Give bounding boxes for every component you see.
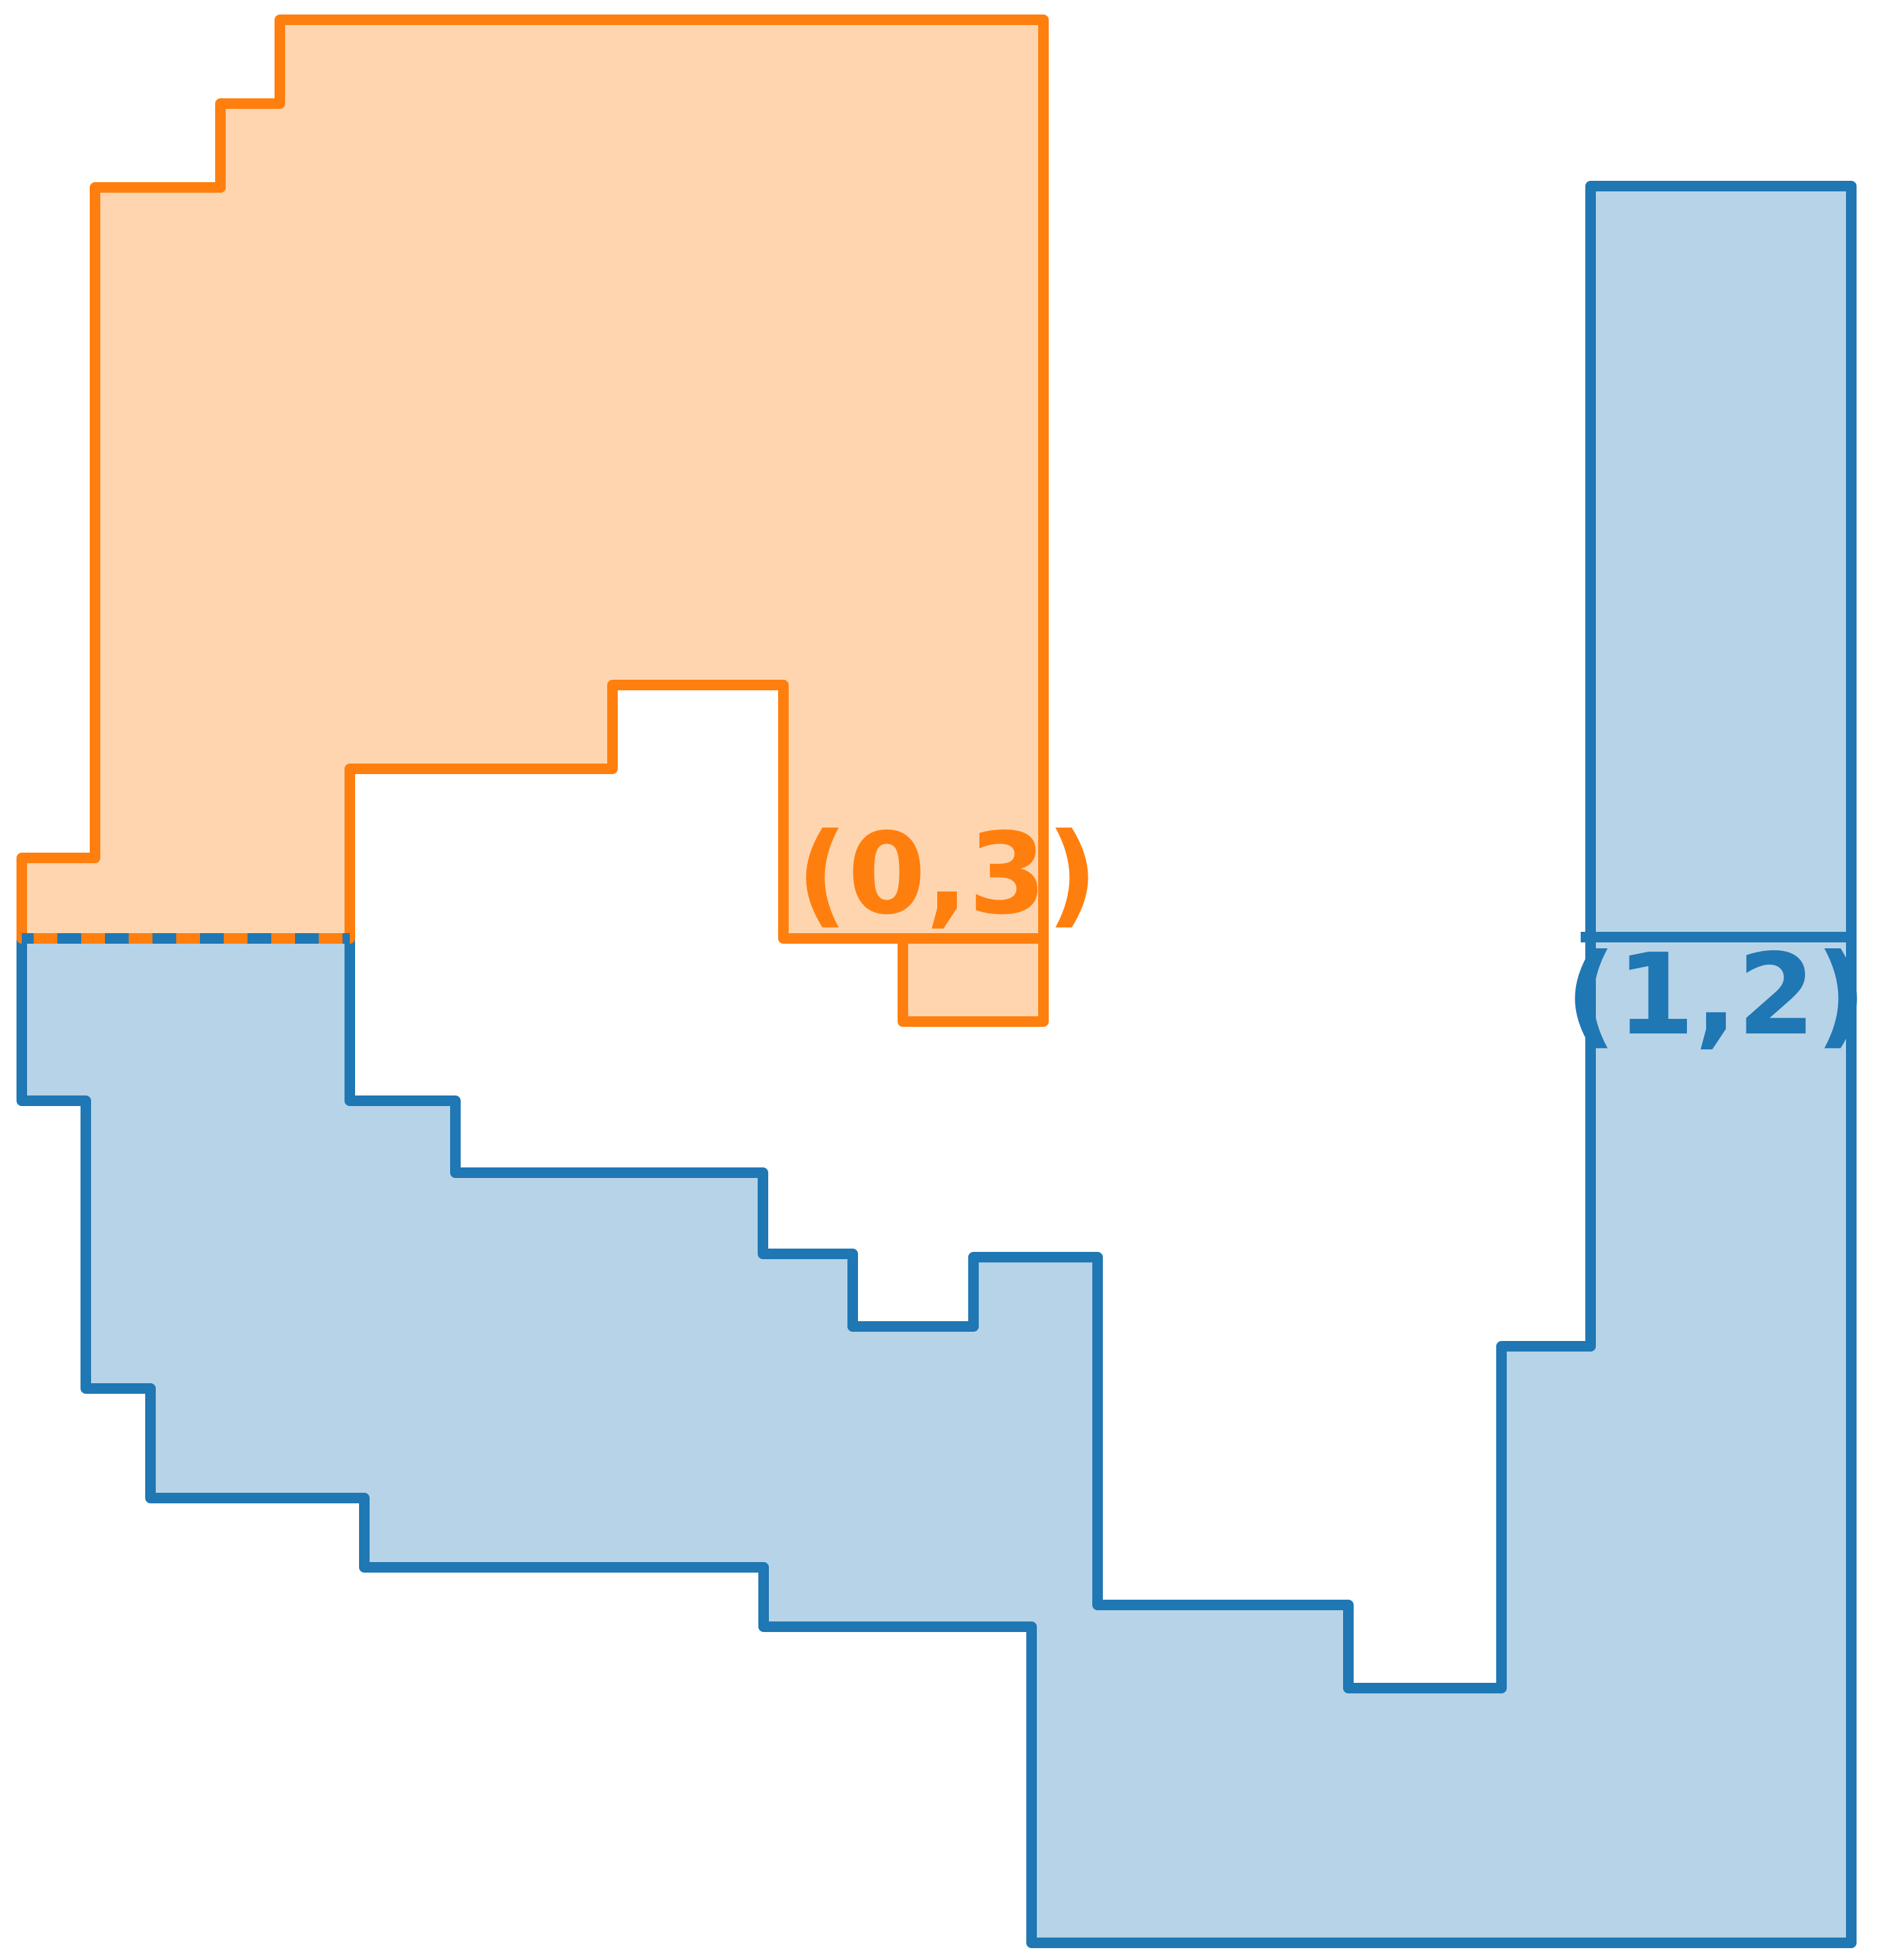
label-point-1-2: (1,2) (1566, 930, 1867, 1061)
label-point-0-3: (0,3) (797, 809, 1098, 940)
staircase-regions-figure: (0,3)(1,2) (0, 0, 1879, 1960)
orange-foot-rectangle (903, 938, 1043, 1022)
figure-canvas: (0,3)(1,2) (0, 0, 1879, 1960)
orange-region (22, 20, 1043, 938)
